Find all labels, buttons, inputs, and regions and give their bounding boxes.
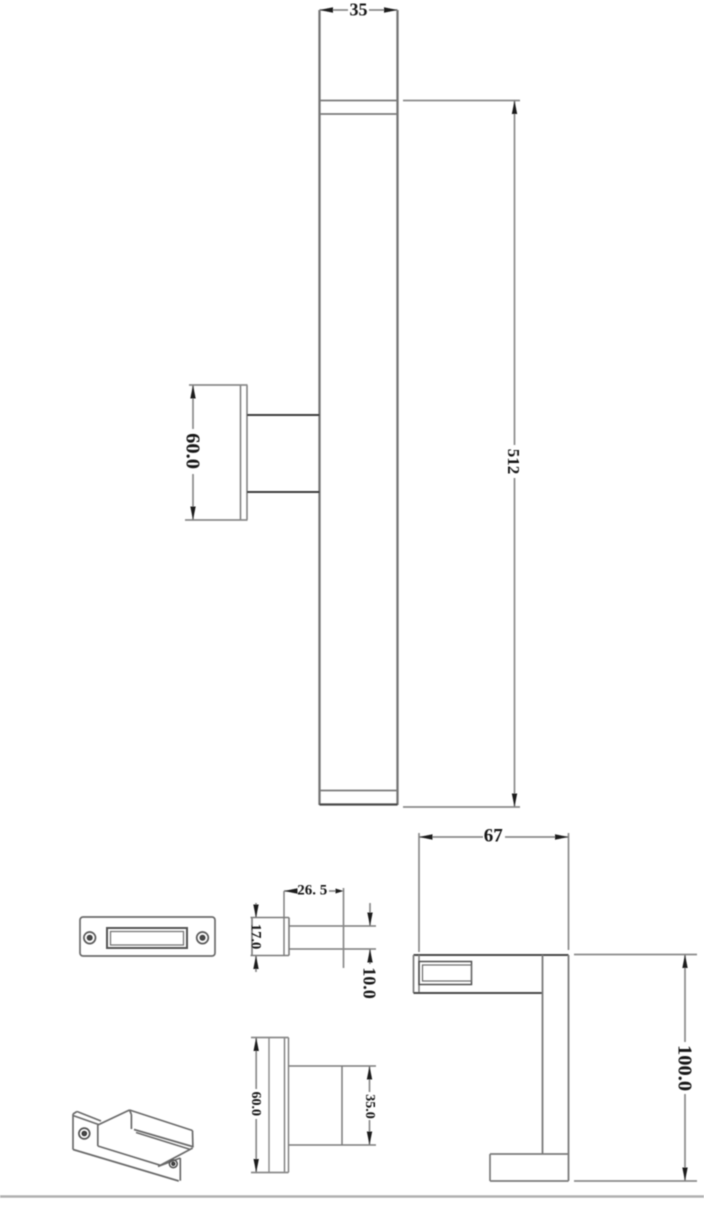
svg-text:17.0: 17.0 <box>248 924 264 949</box>
svg-text:67: 67 <box>484 826 504 847</box>
svg-text:100.0: 100.0 <box>674 1045 696 1091</box>
svg-text:26. 5: 26. 5 <box>297 883 327 899</box>
svg-text:60.0: 60.0 <box>182 433 204 469</box>
svg-text:35: 35 <box>350 0 368 20</box>
svg-text:512: 512 <box>504 449 523 475</box>
svg-text:60.0: 60.0 <box>248 1092 263 1117</box>
svg-text:35.0: 35.0 <box>362 1094 377 1119</box>
svg-text:10.0: 10.0 <box>360 967 380 999</box>
